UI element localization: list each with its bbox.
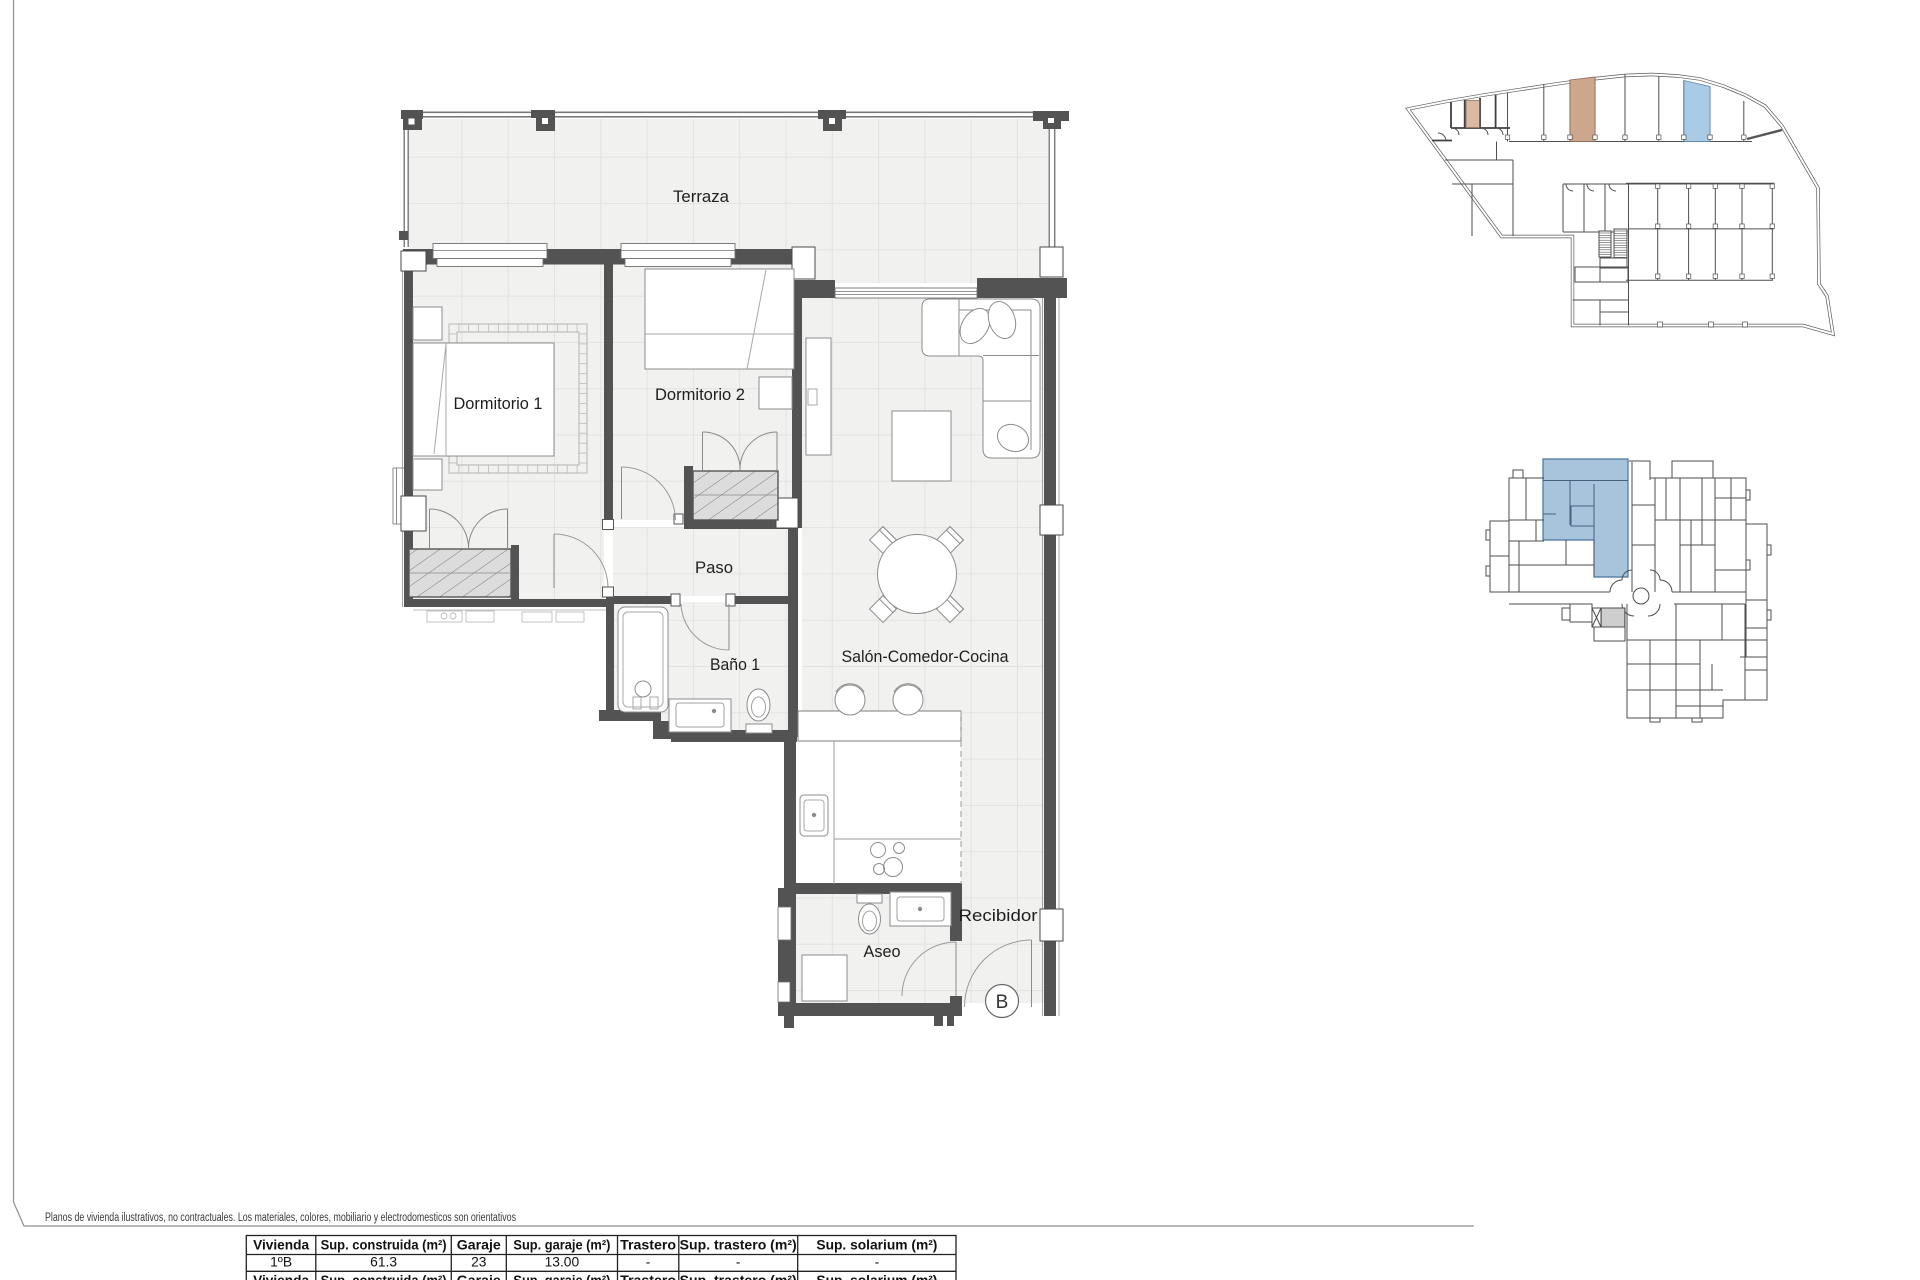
- svg-text:B: B: [996, 992, 1009, 1013]
- svg-text:Salón-Comedor-Cocina: Salón-Comedor-Cocina: [842, 647, 1010, 666]
- svg-text:13.00: 13.00: [545, 1255, 580, 1270]
- svg-text:Trastero: Trastero: [620, 1238, 676, 1253]
- svg-text:Sup. garaje (m²): Sup. garaje (m²): [513, 1238, 610, 1253]
- svg-text:Terraza: Terraza: [673, 187, 730, 206]
- svg-text:Sup. trastero (m²): Sup. trastero (m²): [680, 1238, 797, 1253]
- svg-text:Sup. solarium (m²): Sup. solarium (m²): [816, 1238, 937, 1253]
- svg-text:Vivienda: Vivienda: [253, 1238, 310, 1253]
- svg-text:1ºB: 1ºB: [270, 1255, 292, 1270]
- svg-text:Sup. construida (m²): Sup. construida (m²): [321, 1273, 447, 1280]
- svg-text:Sup. trastero (m²): Sup. trastero (m²): [680, 1273, 797, 1280]
- svg-text:Sup. construida (m²): Sup. construida (m²): [321, 1238, 447, 1253]
- svg-text:-: -: [646, 1255, 651, 1270]
- svg-text:61.3: 61.3: [370, 1255, 397, 1270]
- svg-text:Planos de vivienda ilustrativo: Planos de vivienda ilustrativos, no cont…: [45, 1212, 516, 1224]
- svg-text:Sup. garaje (m²): Sup. garaje (m²): [513, 1273, 610, 1280]
- svg-text:Aseo: Aseo: [864, 942, 901, 961]
- svg-text:23: 23: [471, 1255, 487, 1270]
- svg-text:-: -: [875, 1255, 880, 1270]
- svg-text:-: -: [736, 1255, 741, 1270]
- svg-text:Sup. solarium (m²): Sup. solarium (m²): [816, 1273, 937, 1280]
- svg-text:Paso: Paso: [695, 558, 733, 577]
- svg-text:Garaje: Garaje: [457, 1238, 501, 1253]
- svg-text:Trastero: Trastero: [620, 1273, 676, 1280]
- svg-text:Dormitorio 1: Dormitorio 1: [454, 394, 543, 413]
- svg-text:Dormitorio 2: Dormitorio 2: [655, 385, 745, 404]
- svg-text:Vivienda: Vivienda: [253, 1273, 310, 1280]
- svg-text:Recibidor: Recibidor: [959, 906, 1038, 925]
- svg-text:Baño 1: Baño 1: [710, 655, 760, 674]
- svg-text:Garaje: Garaje: [457, 1273, 501, 1280]
